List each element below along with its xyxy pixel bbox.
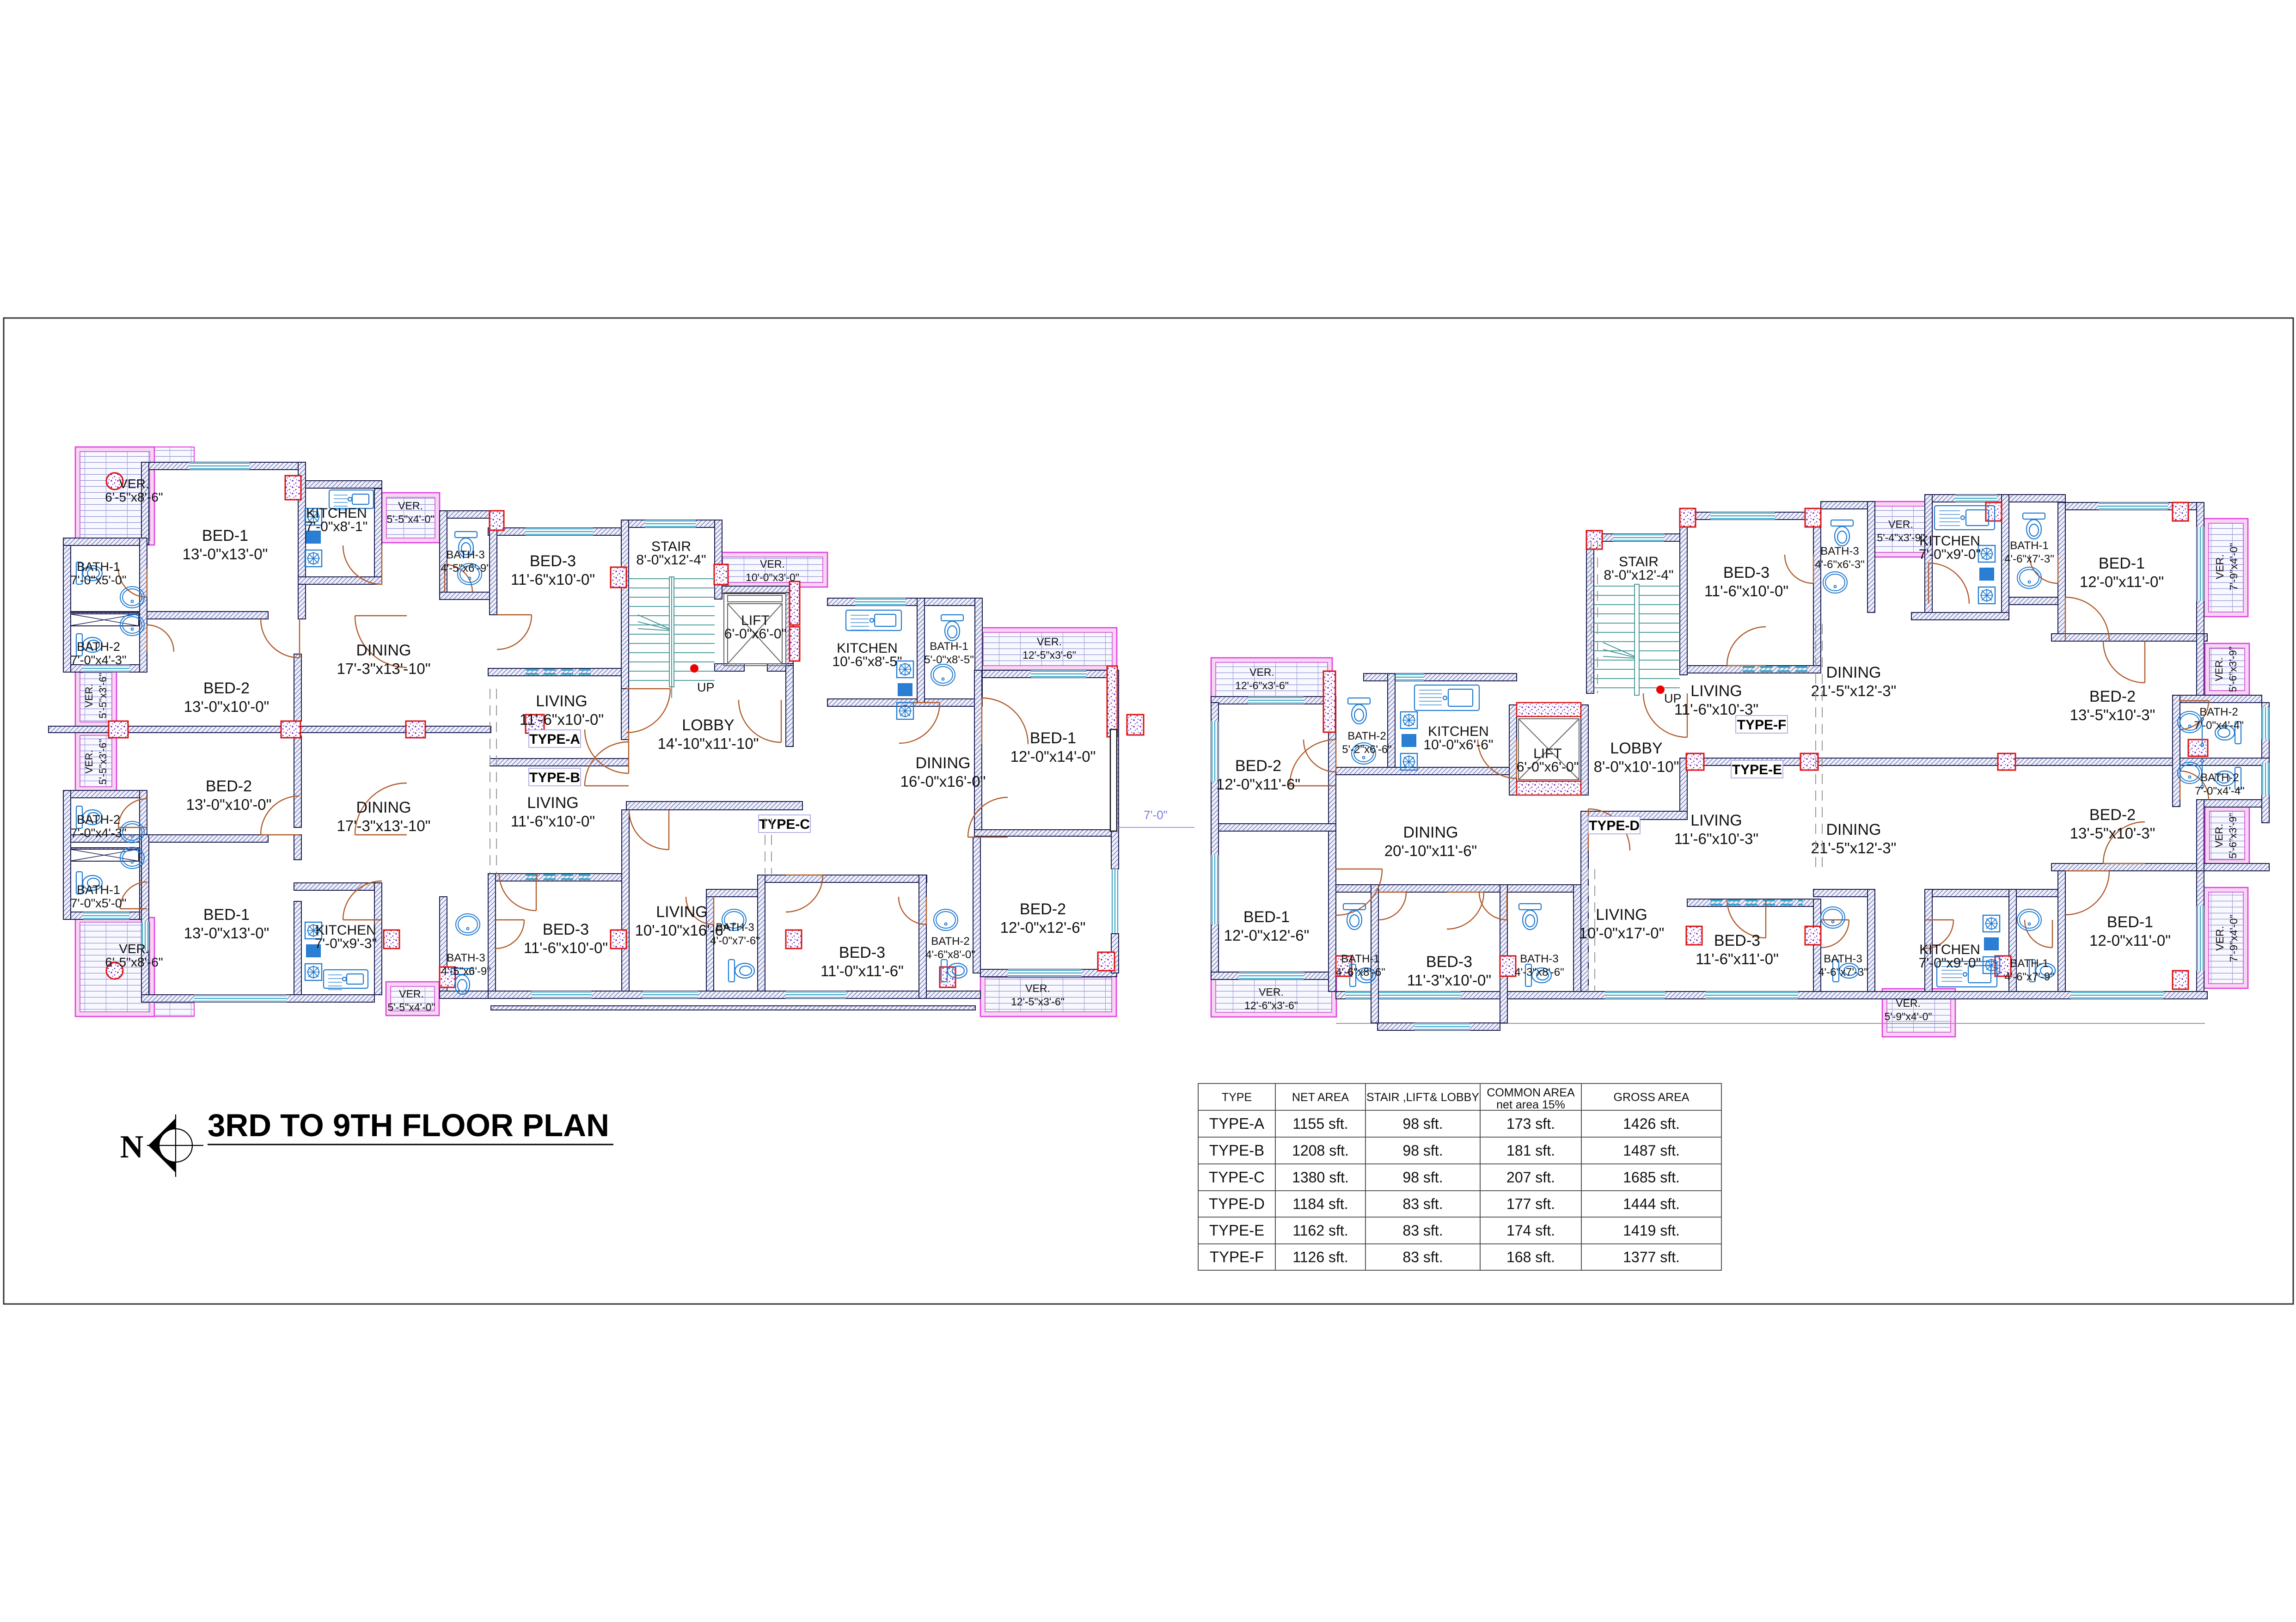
svg-text:13'-0"x13'-0": 13'-0"x13'-0" [183,545,268,563]
svg-text:BED-2: BED-2 [1235,757,1281,775]
svg-text:1162 sft.: 1162 sft. [1292,1222,1348,1239]
svg-text:BED-1: BED-1 [2107,913,2153,931]
svg-text:DINING: DINING [1826,821,1881,839]
svg-text:12-0"x11'-0": 12-0"x11'-0" [2089,932,2171,949]
svg-text:BED-1: BED-1 [203,906,250,924]
svg-text:LIVING: LIVING [656,903,707,921]
svg-text:BED-3: BED-3 [1723,564,1769,581]
svg-text:DINING: DINING [1826,664,1881,681]
svg-text:6'-0"x6'-0": 6'-0"x6'-0" [1517,759,1579,775]
svg-text:12'-6"x3'-6": 12'-6"x3'-6" [1244,999,1298,1011]
svg-text:7'-0"x9'-3": 7'-0"x9'-3" [315,936,377,951]
svg-text:11'-6"x11'-0": 11'-6"x11'-0" [1696,950,1779,967]
svg-text:7'-0"x4'-4": 7'-0"x4'-4" [2194,719,2244,732]
svg-text:4'-3"x8'-6": 4'-3"x8'-6" [1514,966,1564,979]
svg-text:7'-0"x4'-4": 7'-0"x4'-4" [2195,785,2245,797]
svg-text:VER.: VER. [2213,824,2225,847]
svg-text:83 sft.: 83 sft. [1402,1222,1443,1239]
svg-text:GROSS AREA: GROSS AREA [1614,1091,1690,1104]
svg-text:13'-5"x10'-3": 13'-5"x10'-3" [2070,706,2155,723]
svg-text:BED-2: BED-2 [206,777,252,795]
svg-text:10'-0"x6'-6": 10'-0"x6'-6" [1423,737,1493,753]
svg-text:4'-6"x7'-9": 4'-6"x7'-9" [2004,971,2054,983]
svg-text:83 sft.: 83 sft. [1402,1249,1443,1266]
svg-text:11'-6"x10'-0": 11'-6"x10'-0" [520,711,604,728]
svg-text:VER.: VER. [2214,926,2226,951]
svg-text:BED-3: BED-3 [839,944,885,961]
svg-text:VER.: VER. [760,558,785,570]
svg-text:17'-3"x13'-10": 17'-3"x13'-10" [337,817,431,834]
svg-text:5'-6"x3'-9": 5'-6"x3'-9" [2227,813,2239,859]
svg-text:TYPE-A: TYPE-A [529,732,580,747]
svg-text:10'-6"x8'-5": 10'-6"x8'-5" [832,654,902,669]
svg-text:13'-0"x10'-0": 13'-0"x10'-0" [186,796,272,813]
svg-text:BATH-2: BATH-2 [2200,771,2239,784]
svg-text:5'-0"x8'-5": 5'-0"x8'-5" [924,654,974,666]
svg-text:7'-0"x8'-1": 7'-0"x8'-1" [306,519,367,534]
svg-text:4'-6"x8'-0": 4'-6"x8'-0" [925,949,975,961]
svg-text:8'-0"x12'-4": 8'-0"x12'-4" [636,552,706,568]
svg-text:VER.: VER. [2213,657,2225,681]
svg-text:173 sft.: 173 sft. [1506,1115,1555,1132]
svg-text:VER.: VER. [119,477,149,491]
svg-text:TYPE-E: TYPE-E [1209,1222,1264,1239]
svg-text:1487 sft.: 1487 sft. [1623,1142,1680,1159]
svg-text:7'-0"x4'-3": 7'-0"x4'-3" [70,826,126,840]
svg-text:NET AREA: NET AREA [1292,1091,1349,1104]
svg-text:1208 sft.: 1208 sft. [1292,1142,1349,1159]
svg-text:1419 sft.: 1419 sft. [1623,1222,1680,1239]
svg-text:TYPE-F: TYPE-F [1737,717,1787,733]
svg-text:TYPE: TYPE [1222,1091,1252,1104]
svg-text:TYPE-B: TYPE-B [1209,1142,1264,1159]
svg-text:BATH-3: BATH-3 [1824,953,1862,965]
svg-text:11'-6"x10'-0": 11'-6"x10'-0" [511,813,595,830]
svg-text:11'-6"x10'-0": 11'-6"x10'-0" [511,571,595,588]
svg-text:11'-0"x11'-6": 11'-0"x11'-6" [820,962,904,979]
svg-text:12'-0"x12'-6": 12'-0"x12'-6" [1000,919,1086,936]
svg-text:BED-1: BED-1 [1243,908,1290,926]
svg-text:TYPE-D: TYPE-D [1209,1195,1265,1212]
svg-text:7'-0": 7'-0" [1144,808,1168,822]
svg-text:14'-10"x11'-10": 14'-10"x11'-10" [658,735,759,752]
svg-text:VER.: VER. [83,684,95,707]
svg-text:BED-1: BED-1 [202,527,248,545]
svg-text:6'-5"x8'-6": 6'-5"x8'-6" [105,490,163,504]
svg-text:10'-0"x3'-0": 10'-0"x3'-0" [746,571,799,583]
svg-text:LIVING: LIVING [527,794,578,812]
svg-text:LIVING: LIVING [1690,812,1742,829]
svg-text:VER.: VER. [1037,636,1062,648]
svg-text:DINING: DINING [356,642,411,659]
svg-text:8'-0"x12'-4": 8'-0"x12'-4" [1604,568,1673,583]
svg-text:BATH-3: BATH-3 [1520,953,1559,965]
svg-text:LOBBY: LOBBY [682,716,734,734]
svg-text:BATH-2: BATH-2 [2199,706,2238,718]
svg-text:BATH-2: BATH-2 [931,935,970,948]
svg-text:VER.: VER. [399,988,424,1000]
svg-text:1377 sft.: 1377 sft. [1623,1249,1680,1266]
svg-text:207 sft.: 207 sft. [1506,1169,1555,1186]
svg-text:1444 sft.: 1444 sft. [1623,1196,1680,1212]
svg-text:21'-5"x12'-3": 21'-5"x12'-3" [1811,682,1897,699]
svg-text:TYPE-C: TYPE-C [1209,1169,1265,1186]
svg-text:5'-9"x4'-0": 5'-9"x4'-0" [1884,1010,1932,1022]
svg-text:12'-0"x11'-0": 12'-0"x11'-0" [2080,573,2164,590]
svg-text:DINING: DINING [1403,824,1458,841]
svg-text:4'-6"x8'-6": 4'-6"x8'-6" [1335,966,1385,979]
svg-text:VER.: VER. [1896,997,1921,1009]
svg-text:16'-0"x16'-0": 16'-0"x16'-0" [900,773,986,790]
svg-text:TYPE-F: TYPE-F [1210,1249,1264,1266]
svg-text:181 sft.: 181 sft. [1506,1142,1555,1159]
svg-text:LIVING: LIVING [536,692,587,710]
svg-text:7'-9"x4'-0": 7'-9"x4'-0" [2228,914,2240,962]
svg-text:VER.: VER. [2214,554,2226,579]
svg-text:VER.: VER. [119,942,149,956]
svg-text:168 sft.: 168 sft. [1506,1249,1555,1266]
svg-text:1426 sft.: 1426 sft. [1623,1115,1680,1132]
svg-text:13'-0"x10'-0": 13'-0"x10'-0" [184,698,269,715]
svg-text:7'-0"x9'-0": 7'-0"x9'-0" [1919,547,1981,562]
svg-text:STAIR ,LIFT& LOBBY: STAIR ,LIFT& LOBBY [1366,1091,1479,1104]
svg-text:11'-6"x10'-0": 11'-6"x10'-0" [1704,582,1788,600]
svg-text:TYPE-A: TYPE-A [1209,1115,1264,1132]
svg-text:13'-5"x10'-3": 13'-5"x10'-3" [2070,825,2155,842]
svg-text:BED-3: BED-3 [543,921,589,938]
svg-text:DINING: DINING [916,754,971,772]
svg-text:1155 sft.: 1155 sft. [1292,1115,1348,1132]
svg-text:BATH-3: BATH-3 [716,921,754,934]
svg-text:11'-6"x10'-0": 11'-6"x10'-0" [524,939,608,956]
svg-text:12'-0"x11'-6": 12'-0"x11'-6" [1216,776,1300,793]
svg-text:10'-0"x17'-0": 10'-0"x17'-0" [1579,924,1665,942]
svg-text:12'-5"x3'-6": 12'-5"x3'-6" [1022,649,1076,661]
svg-text:N: N [120,1129,144,1165]
svg-text:6'-0"x6'-0": 6'-0"x6'-0" [724,626,786,642]
svg-text:12'-6"x3'-6": 12'-6"x3'-6" [1235,679,1289,692]
svg-text:177 sft.: 177 sft. [1506,1196,1555,1212]
svg-text:98 sft.: 98 sft. [1402,1115,1443,1132]
svg-text:4'-5"x6'-9": 4'-5"x6'-9" [441,965,491,978]
svg-text:BATH-1: BATH-1 [77,560,120,574]
svg-text:6'-5"x8'-6": 6'-5"x8'-6" [105,955,163,969]
svg-text:BED-1: BED-1 [2099,555,2145,572]
svg-text:4'-6"x7'-3": 4'-6"x7'-3" [1818,966,1868,979]
svg-text:UP: UP [697,680,715,694]
svg-text:TYPE-C: TYPE-C [759,817,810,832]
svg-text:20'-10"x11'-6": 20'-10"x11'-6" [1384,842,1477,859]
svg-text:VER.: VER. [1249,666,1274,678]
svg-text:BED-3: BED-3 [1426,953,1472,971]
svg-text:98 sft.: 98 sft. [1402,1169,1443,1186]
svg-text:BED-3: BED-3 [1714,932,1760,949]
svg-text:5'-5"x3'-6": 5'-5"x3'-6" [97,739,109,785]
svg-text:4'-5"x6'-9": 4'-5"x6'-9" [441,562,490,575]
svg-text:BED-2: BED-2 [2089,688,2136,705]
svg-text:21'-5"x12'-3": 21'-5"x12'-3" [1811,839,1897,857]
svg-text:BATH-1: BATH-1 [930,640,968,653]
svg-text:1184 sft.: 1184 sft. [1292,1196,1348,1212]
svg-text:3RD TO 9TH FLOOR PLAN: 3RD TO 9TH FLOOR PLAN [208,1108,609,1143]
svg-text:5'-4"x3'-9": 5'-4"x3'-9" [1877,532,1924,544]
svg-text:5'-5"x4'-0": 5'-5"x4'-0" [387,1001,435,1013]
svg-text:13'-0"x13'-0": 13'-0"x13'-0" [184,924,269,942]
svg-text:LIVING: LIVING [1690,682,1742,700]
svg-text:12'-0"x12'-6": 12'-0"x12'-6" [1224,927,1310,944]
svg-text:8'-0"x10'-10": 8'-0"x10'-10" [1594,758,1679,775]
svg-text:VER.: VER. [398,500,423,512]
svg-text:BATH-3: BATH-3 [446,549,485,561]
svg-text:12'-5"x3'-6": 12'-5"x3'-6" [1011,996,1065,1008]
svg-text:BATH-1: BATH-1 [77,883,120,897]
svg-text:83 sft.: 83 sft. [1402,1196,1443,1212]
svg-text:DINING: DINING [356,799,411,816]
svg-text:11'-6"x10'-3": 11'-6"x10'-3" [1674,830,1758,847]
svg-text:17'-3"x13'-10": 17'-3"x13'-10" [337,660,431,677]
svg-text:TYPE-D: TYPE-D [1589,818,1640,833]
svg-text:7'-0"x9'-0": 7'-0"x9'-0" [1919,955,1981,971]
svg-text:5'-2"x6'-6": 5'-2"x6'-6" [1342,743,1392,756]
svg-text:4'-0"x7'-6": 4'-0"x7'-6" [710,935,760,947]
svg-text:BATH-1: BATH-1 [1341,953,1380,965]
svg-text:BATH-2: BATH-2 [1347,730,1386,742]
svg-text:7'-0"x5'-0": 7'-0"x5'-0" [70,896,126,910]
svg-text:BATH-2: BATH-2 [77,813,120,826]
svg-text:BED-2: BED-2 [203,679,250,697]
svg-text:BATH-1: BATH-1 [2010,957,2049,970]
svg-text:COMMON AREA: COMMON AREA [1487,1086,1575,1099]
svg-text:VER.: VER. [1888,518,1913,530]
svg-text:1685 sft.: 1685 sft. [1623,1169,1680,1186]
svg-text:1126 sft.: 1126 sft. [1292,1249,1348,1266]
svg-text:BATH-3: BATH-3 [447,952,485,964]
svg-text:BATH-2: BATH-2 [77,640,120,654]
svg-text:7'-0"x4'-3": 7'-0"x4'-3" [70,653,126,667]
svg-text:VER.: VER. [1025,982,1050,994]
svg-text:BED-2: BED-2 [2089,806,2136,824]
svg-text:98 sft.: 98 sft. [1402,1142,1443,1159]
svg-text:BATH-1: BATH-1 [2010,539,2049,552]
svg-text:TYPE-B: TYPE-B [529,770,580,785]
svg-text:4'-6"x6'-3": 4'-6"x6'-3" [1815,558,1865,571]
svg-text:BED-2: BED-2 [1020,900,1066,918]
svg-text:net area 15%: net area 15% [1496,1098,1565,1111]
svg-text:5'-6"x3'-9": 5'-6"x3'-9" [2227,647,2239,692]
svg-text:LOBBY: LOBBY [1610,740,1662,757]
svg-text:VER.: VER. [1259,986,1284,998]
svg-text:5'-5"x3'-6": 5'-5"x3'-6" [97,673,109,719]
svg-text:BED-3: BED-3 [530,552,576,570]
svg-text:BED-1: BED-1 [1030,729,1076,747]
svg-text:11'-3"x10'-0": 11'-3"x10'-0" [1407,972,1491,989]
svg-text:BATH-3: BATH-3 [1820,545,1859,557]
svg-text:1380 sft.: 1380 sft. [1292,1169,1349,1186]
svg-text:7'-9"x4'-0": 7'-9"x4'-0" [2228,543,2240,590]
svg-text:4'-6"x7'-3": 4'-6"x7'-3" [2004,553,2054,565]
svg-text:7'-0"x5'-0": 7'-0"x5'-0" [70,573,126,587]
svg-text:VER.: VER. [83,750,95,773]
svg-text:TYPE-E: TYPE-E [1732,762,1782,777]
svg-text:5'-5"x4'-0": 5'-5"x4'-0" [386,513,434,525]
svg-text:12'-0"x14'-0": 12'-0"x14'-0" [1010,748,1096,765]
svg-text:174 sft.: 174 sft. [1506,1222,1555,1239]
svg-text:LIVING: LIVING [1596,906,1647,924]
